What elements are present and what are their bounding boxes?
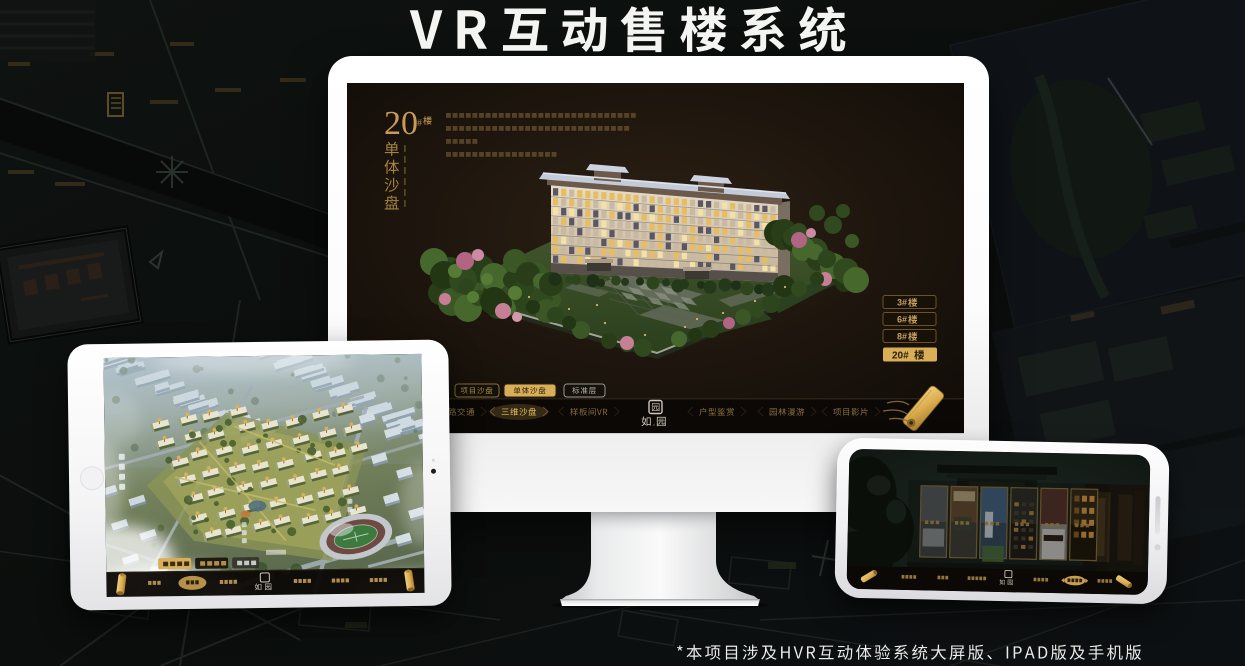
svg-text:#: # xyxy=(417,118,422,129)
svg-text:20: 20 xyxy=(384,105,418,142)
svg-text:3#: 3# xyxy=(897,298,907,308)
svg-text:20#: 20# xyxy=(892,351,909,362)
svg-text:8#: 8# xyxy=(897,332,907,342)
svg-text:6#: 6# xyxy=(897,315,907,325)
svg-text:.: . xyxy=(653,419,655,428)
